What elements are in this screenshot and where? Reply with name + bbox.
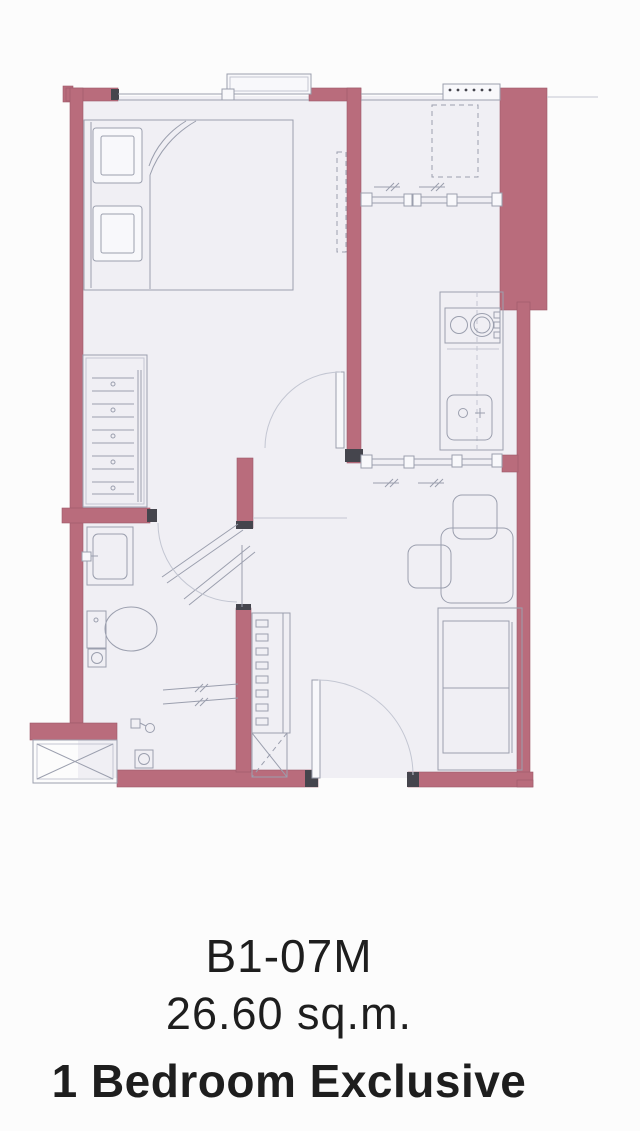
door-leaf [336, 372, 344, 448]
unit-type: 1 Bedroom Exclusive [0, 1055, 578, 1108]
window-mullion [222, 89, 234, 100]
wall-bottom-right [408, 772, 533, 787]
unit-caption: B1-07M 26.60 sq.m. 1 Bedroom Exclusive [0, 930, 578, 1108]
louver-vent [443, 84, 500, 100]
wall-bedroom-divider [347, 88, 361, 463]
door-leaf [312, 680, 320, 778]
wall-corner-flare-br [517, 780, 533, 787]
unit-code: B1-07M [0, 930, 578, 983]
jamb-cap [236, 521, 253, 529]
floorplan-page: B1-07M 26.60 sq.m. 1 Bedroom Exclusive [0, 0, 640, 1131]
wall-shaft-band [30, 723, 117, 740]
wall-right [517, 302, 530, 780]
tap [82, 552, 91, 561]
jamb-cap [345, 449, 363, 462]
jamb-cap [236, 604, 251, 610]
wall-column-top-right [500, 88, 547, 310]
jamb-cap [111, 89, 119, 100]
wall-left [70, 88, 83, 723]
wall-bathroom-east [236, 608, 251, 772]
wall-bottom-left [117, 770, 318, 787]
floor-plan [0, 0, 640, 900]
unit-area: 26.60 sq.m. [0, 988, 578, 1040]
wall-bathroom-top [62, 508, 150, 523]
wall-hall-stub [237, 458, 253, 528]
wall-right-flare [502, 455, 518, 472]
jamb-cap [147, 509, 157, 522]
